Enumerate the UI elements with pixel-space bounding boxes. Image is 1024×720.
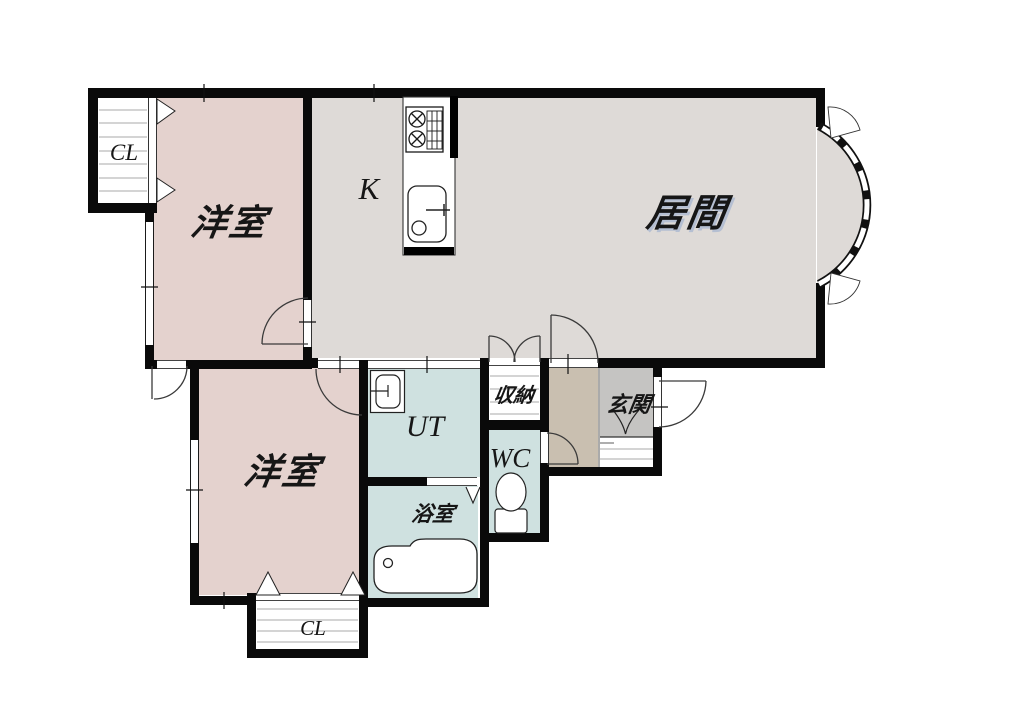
- living-label: 居間: [624, 183, 752, 235]
- entrance-label: 玄関: [599, 389, 659, 417]
- opening-kitchen-to-utility: [318, 360, 480, 369]
- closet-top-label: CL: [100, 137, 148, 169]
- closet-top-front: [148, 98, 157, 203]
- bedroom-bottom-label: 洋室: [227, 445, 339, 493]
- wall-segment: [145, 360, 157, 369]
- opening-wc-door: [540, 432, 549, 463]
- wall-segment: [186, 360, 312, 369]
- wall-segment: [816, 283, 825, 368]
- wall-segment: [480, 420, 549, 430]
- wall-segment: [303, 358, 318, 368]
- kitchen-label: K: [344, 170, 394, 208]
- opening-storage-doors: [489, 358, 540, 366]
- window-bedroom-top-left: [145, 222, 154, 345]
- wc-label: WC: [485, 440, 535, 476]
- wall-segment: [359, 477, 427, 486]
- door-arc-bedroom-top-exterior: [152, 366, 187, 399]
- opening-hallway-door: [549, 358, 598, 368]
- door-arc-entrance: [659, 381, 706, 427]
- wall-segment: [480, 533, 549, 542]
- bathroom-label: 浴室: [402, 498, 465, 528]
- closet-bottom-front: [256, 593, 359, 601]
- opening-bath-door: [427, 477, 477, 486]
- wall-segment: [598, 358, 825, 368]
- window-bedroom-bottom-left: [190, 440, 199, 543]
- wall-segment: [540, 467, 662, 476]
- utility-label: UT: [394, 407, 456, 447]
- wall-segment: [88, 88, 825, 98]
- wall-segment: [359, 598, 487, 607]
- wall-segment: [816, 88, 825, 127]
- room-hallway: [549, 368, 598, 467]
- wall-segment: [88, 88, 98, 213]
- bay-window: [817, 107, 867, 304]
- wall-segment: [190, 360, 199, 440]
- wall-segment: [145, 203, 154, 222]
- opening-bedroom-top-ext-door: [157, 360, 186, 369]
- wall-segment: [247, 649, 368, 658]
- storage-label: 収納: [484, 378, 545, 408]
- wall-segment: [653, 427, 662, 476]
- bedroom-top-label: 洋室: [174, 196, 286, 244]
- closet-bottom-label: CL: [288, 613, 338, 643]
- opening-bedroom-top-door: [303, 300, 312, 347]
- floor-plan: CL 洋室 K 居間 洋室 UT 収納 玄関 WC 浴室 CL: [0, 0, 1024, 720]
- wall-segment: [303, 98, 312, 300]
